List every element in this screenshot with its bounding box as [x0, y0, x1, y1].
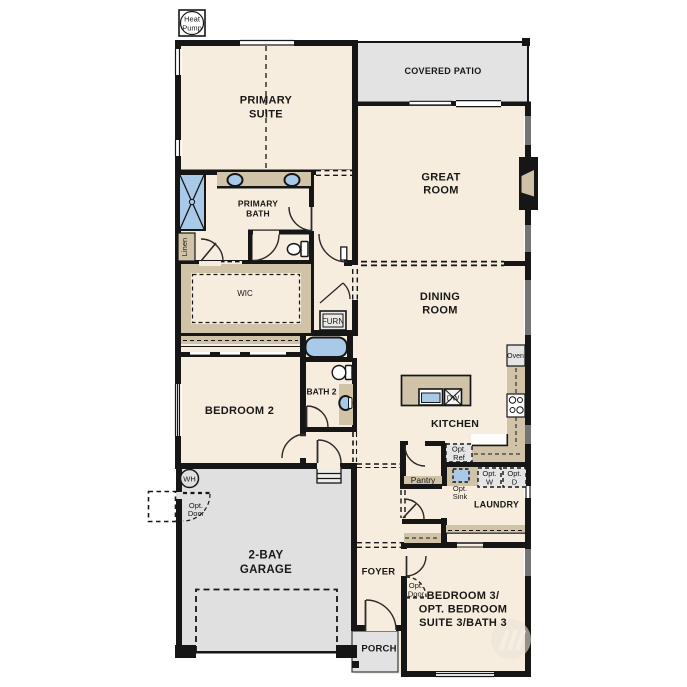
- svg-text:BEDROOM 2: BEDROOM 2: [205, 405, 274, 417]
- svg-text:DW: DW: [447, 394, 460, 403]
- svg-text:WH: WH: [183, 475, 196, 484]
- svg-text:LAUNDRY: LAUNDRY: [474, 500, 519, 510]
- svg-text:WIC: WIC: [237, 289, 253, 298]
- svg-text:BATH 2: BATH 2: [306, 387, 336, 397]
- svg-text:ROOM: ROOM: [422, 305, 457, 317]
- svg-text:GREAT: GREAT: [421, 172, 460, 184]
- svg-text:Pump: Pump: [182, 24, 202, 33]
- svg-text:SUITE 3/BATH 3: SUITE 3/BATH 3: [419, 617, 507, 629]
- svg-text:Sink: Sink: [453, 492, 468, 501]
- svg-text:COVERED PATIO: COVERED PATIO: [404, 66, 481, 76]
- svg-text:Oven: Oven: [507, 353, 524, 360]
- svg-text:W: W: [486, 478, 494, 487]
- svg-text:GARAGE: GARAGE: [240, 564, 292, 576]
- svg-text:PRIMARY: PRIMARY: [238, 199, 278, 209]
- svg-text:Ref: Ref: [453, 453, 466, 462]
- svg-text:DINING: DINING: [420, 291, 460, 303]
- svg-text:Linen: Linen: [180, 238, 189, 256]
- svg-text:D: D: [512, 478, 518, 487]
- svg-text:SUITE: SUITE: [249, 109, 283, 121]
- svg-text:Heat: Heat: [184, 15, 201, 24]
- svg-text:BATH: BATH: [246, 209, 270, 219]
- svg-text:2-BAY: 2-BAY: [249, 550, 284, 562]
- svg-text:OPT. BEDROOM: OPT. BEDROOM: [419, 604, 508, 616]
- svg-text:ROOM: ROOM: [423, 185, 458, 197]
- svg-text:Door: Door: [188, 509, 205, 518]
- svg-text:FURN: FURN: [322, 317, 344, 326]
- svg-text:FOYER: FOYER: [362, 567, 396, 578]
- svg-text:PORCH: PORCH: [361, 644, 396, 655]
- svg-text:BEDROOM 3/: BEDROOM 3/: [427, 590, 500, 602]
- svg-text:KITCHEN: KITCHEN: [431, 418, 479, 430]
- svg-text:PRIMARY: PRIMARY: [240, 95, 293, 107]
- svg-text:Door: Door: [408, 590, 425, 599]
- svg-text:Pantry: Pantry: [411, 475, 436, 485]
